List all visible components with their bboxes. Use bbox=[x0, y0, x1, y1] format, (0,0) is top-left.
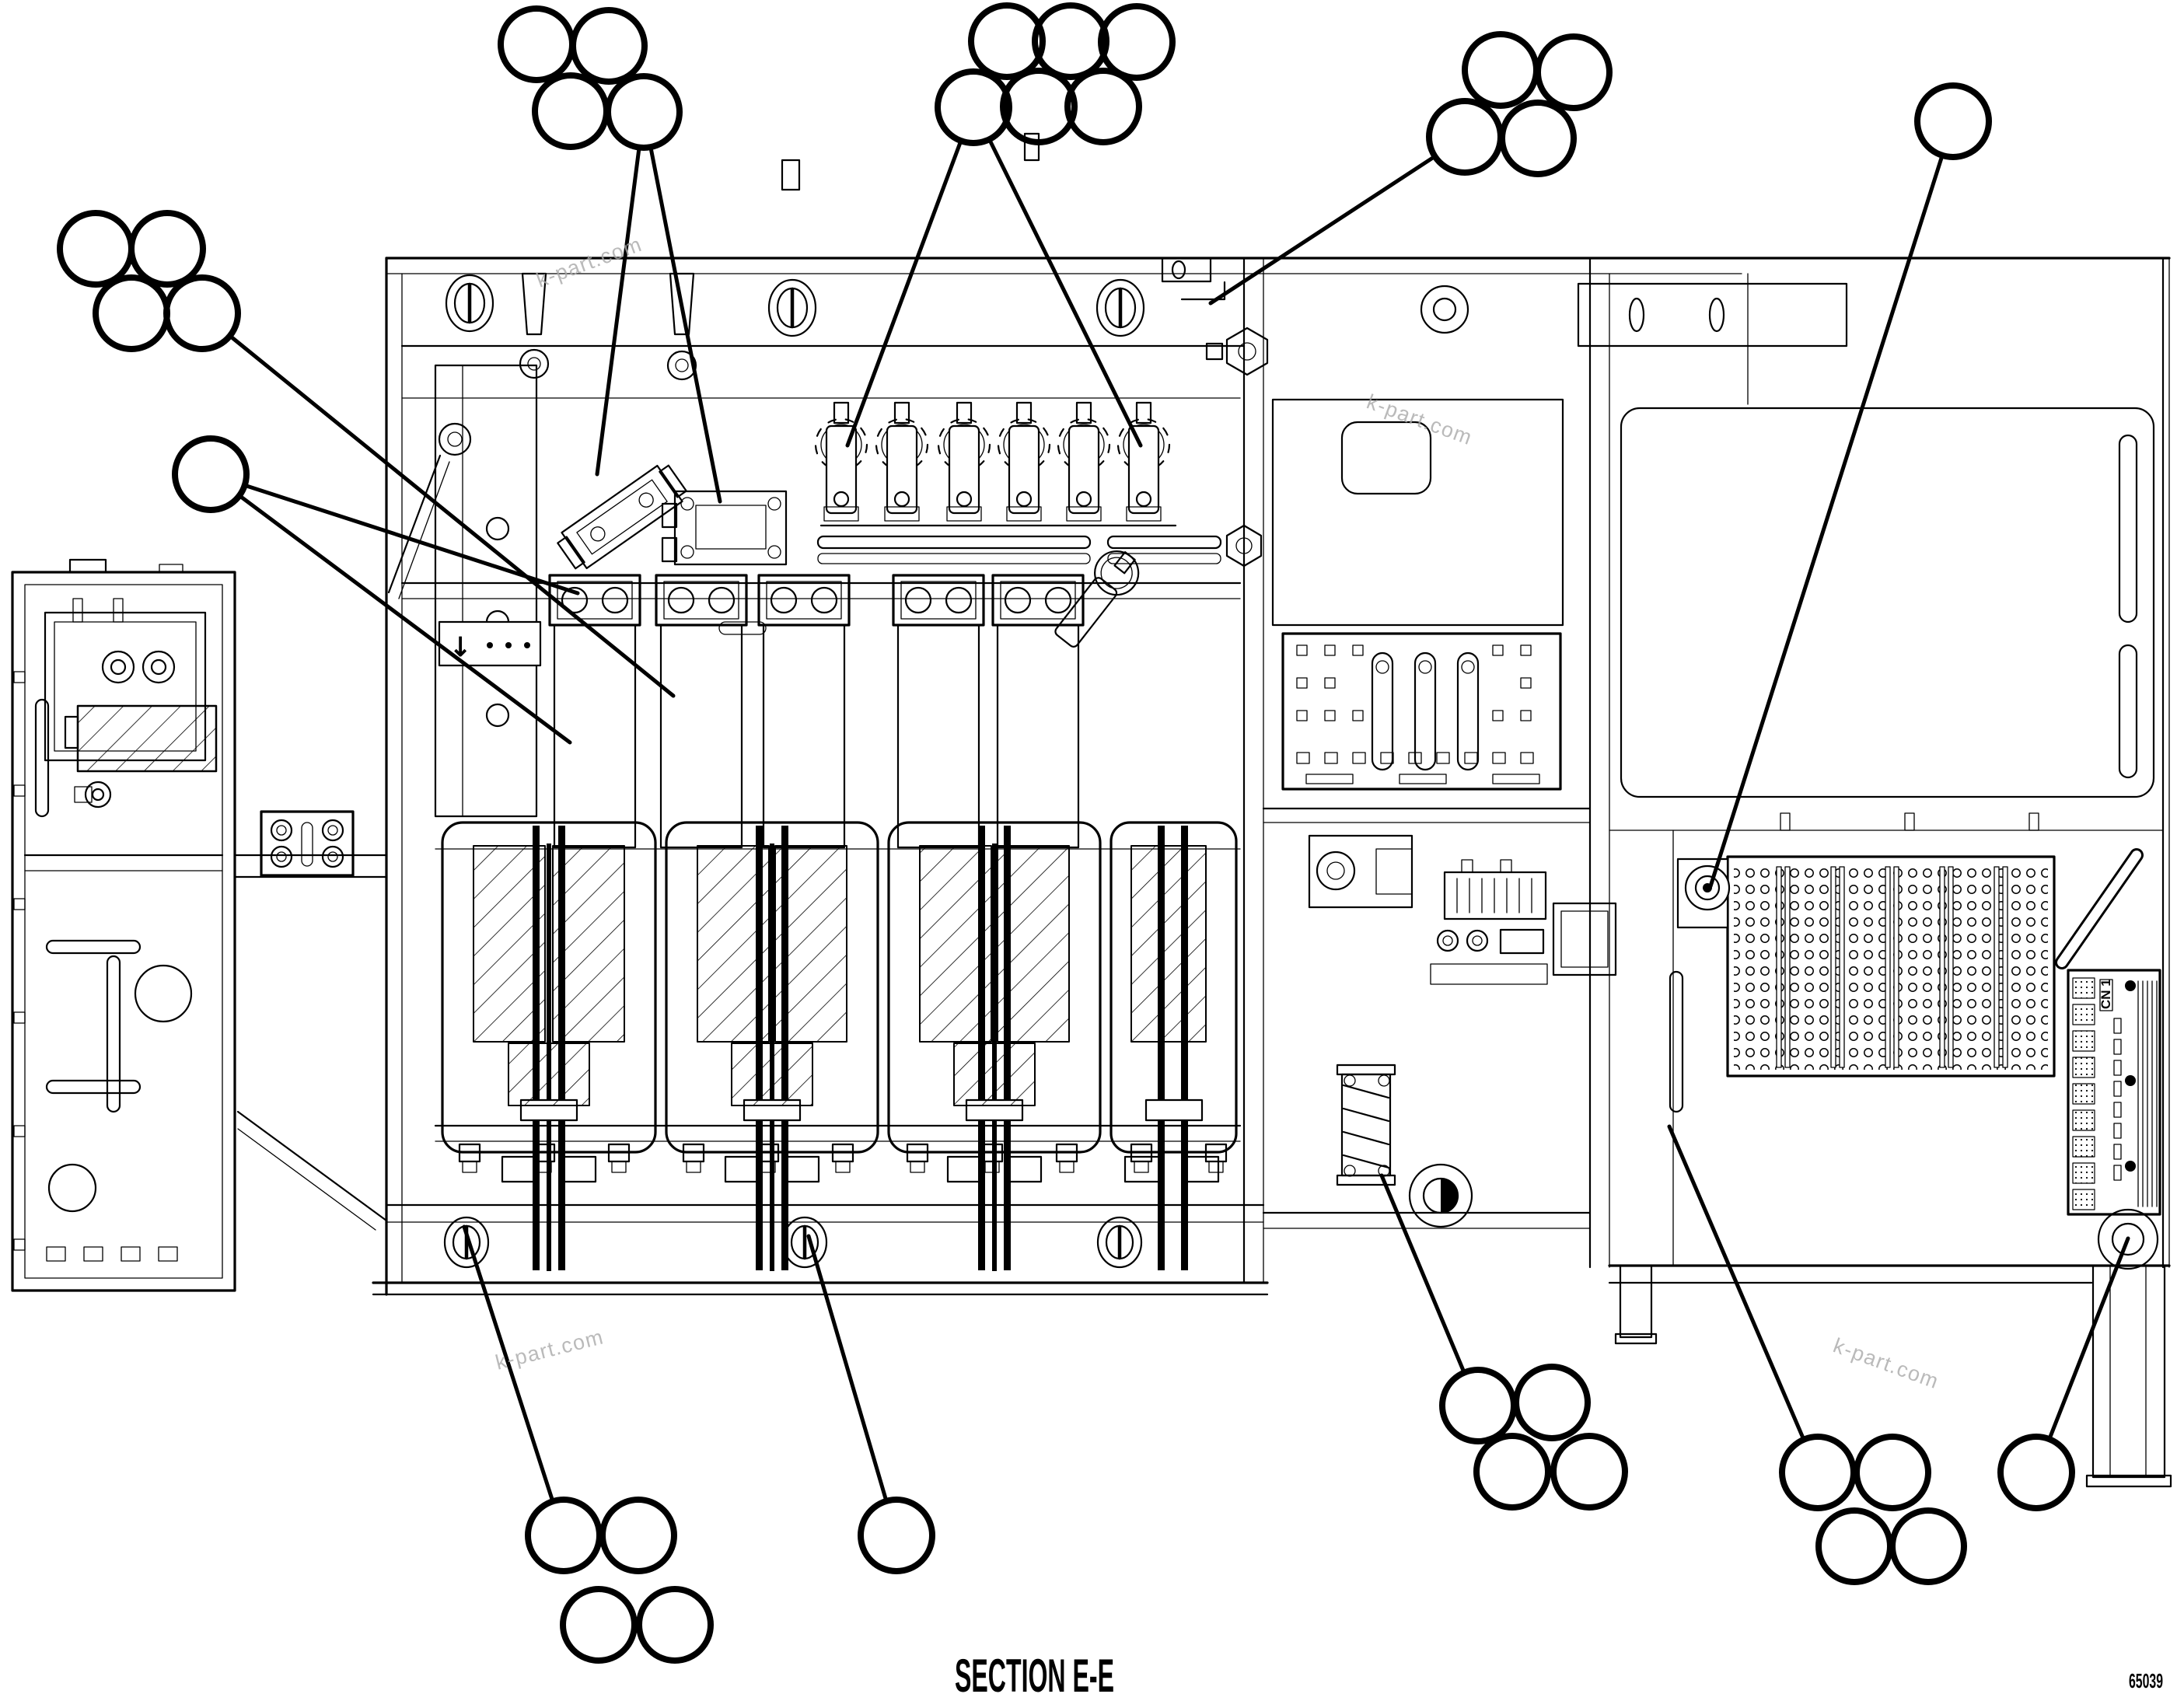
component-cluster bbox=[1309, 836, 1616, 984]
machine-drawing: ↓ bbox=[12, 134, 2171, 1486]
callout-balloon bbox=[501, 9, 572, 80]
callout-balloon bbox=[60, 213, 131, 285]
callout-balloon bbox=[861, 1500, 932, 1571]
injector-cap bbox=[876, 403, 928, 521]
cylinder-group bbox=[442, 823, 655, 1271]
leader-line bbox=[809, 1236, 886, 1501]
callout-balloon bbox=[573, 10, 645, 82]
watermarks: k-part.comk-part.comk-part.comk-part.com bbox=[493, 232, 1942, 1394]
connector-label: CN 1 bbox=[2098, 979, 2113, 1009]
leader-line bbox=[1211, 156, 1435, 303]
injector-cap bbox=[1058, 403, 1109, 521]
callout-balloon bbox=[1516, 1367, 1588, 1438]
callout-balloon bbox=[535, 75, 606, 147]
main-frame bbox=[373, 134, 2169, 1294]
callout-balloon bbox=[1429, 101, 1501, 173]
callout-balloon bbox=[1892, 1511, 1964, 1582]
callout-balloon bbox=[1502, 103, 1574, 174]
leader-line bbox=[1711, 155, 1942, 886]
section-title: SECTION E-E bbox=[955, 1650, 1114, 1701]
cylinder-group bbox=[1111, 823, 1236, 1270]
knob bbox=[1263, 1165, 1590, 1228]
terminal-board bbox=[1263, 634, 1590, 823]
callout-balloon bbox=[1068, 71, 1139, 142]
watermark-text: k-part.com bbox=[1830, 1333, 1942, 1393]
left-assembly bbox=[12, 560, 235, 1291]
leader-lines bbox=[230, 139, 2128, 1501]
bracket-assemblies bbox=[389, 365, 786, 816]
callout-balloon bbox=[175, 438, 246, 510]
grommet-box bbox=[235, 812, 386, 1230]
callout-balloon bbox=[1782, 1437, 1854, 1508]
callout-balloon bbox=[2001, 1437, 2072, 1508]
callout-balloon bbox=[639, 1589, 711, 1661]
callout-balloon bbox=[131, 213, 203, 285]
leader-line bbox=[651, 147, 720, 501]
coil-component bbox=[1337, 1065, 1395, 1185]
parts-diagram-page: ↓ bbox=[0, 0, 2184, 1701]
callout-balloon bbox=[528, 1500, 599, 1571]
callout-balloon bbox=[1476, 1436, 1548, 1507]
leader-line bbox=[2049, 1238, 2128, 1439]
leader-line bbox=[597, 148, 639, 474]
hex-fittings bbox=[1207, 328, 1267, 566]
callout-balloon bbox=[608, 76, 680, 148]
callout-balloon bbox=[1857, 1437, 1928, 1508]
top-rail-bolts bbox=[446, 274, 1144, 379]
connector-board bbox=[2068, 970, 2160, 1269]
watermark-text: k-part.com bbox=[533, 232, 645, 292]
injector-row bbox=[816, 403, 1221, 564]
callout-balloon bbox=[1538, 37, 1609, 108]
callout-balloon bbox=[166, 278, 238, 349]
callout-balloon bbox=[1101, 6, 1172, 78]
mid-right-panel bbox=[1273, 274, 1847, 625]
cylinder-group bbox=[666, 823, 878, 1271]
drawing-number: 65039 bbox=[2129, 1669, 2163, 1692]
cylinder-group bbox=[889, 823, 1100, 1271]
callout-balloons bbox=[60, 5, 2072, 1661]
cylinder-assemblies bbox=[442, 823, 1236, 1271]
injector-cap bbox=[1118, 403, 1169, 521]
callout-balloon bbox=[1917, 86, 1989, 157]
watermark-text: k-part.com bbox=[493, 1325, 606, 1374]
callout-balloon bbox=[1442, 1370, 1514, 1441]
injector-cap bbox=[816, 403, 867, 521]
callout-balloon bbox=[563, 1589, 634, 1661]
callout-balloon bbox=[938, 72, 1009, 143]
callout-balloon bbox=[1465, 34, 1536, 106]
leader-line bbox=[989, 139, 1141, 445]
injector-cap bbox=[998, 403, 1050, 521]
leader-line bbox=[847, 141, 961, 445]
callout-balloon bbox=[1003, 71, 1075, 142]
injector-cap bbox=[938, 403, 990, 521]
callout-balloon bbox=[96, 278, 167, 349]
leader-line bbox=[239, 496, 570, 743]
callout-balloon bbox=[603, 1500, 674, 1571]
callout-balloon bbox=[1819, 1511, 1890, 1582]
section-diagram: ↓ bbox=[0, 0, 2184, 1701]
callout-balloon bbox=[1553, 1436, 1625, 1507]
